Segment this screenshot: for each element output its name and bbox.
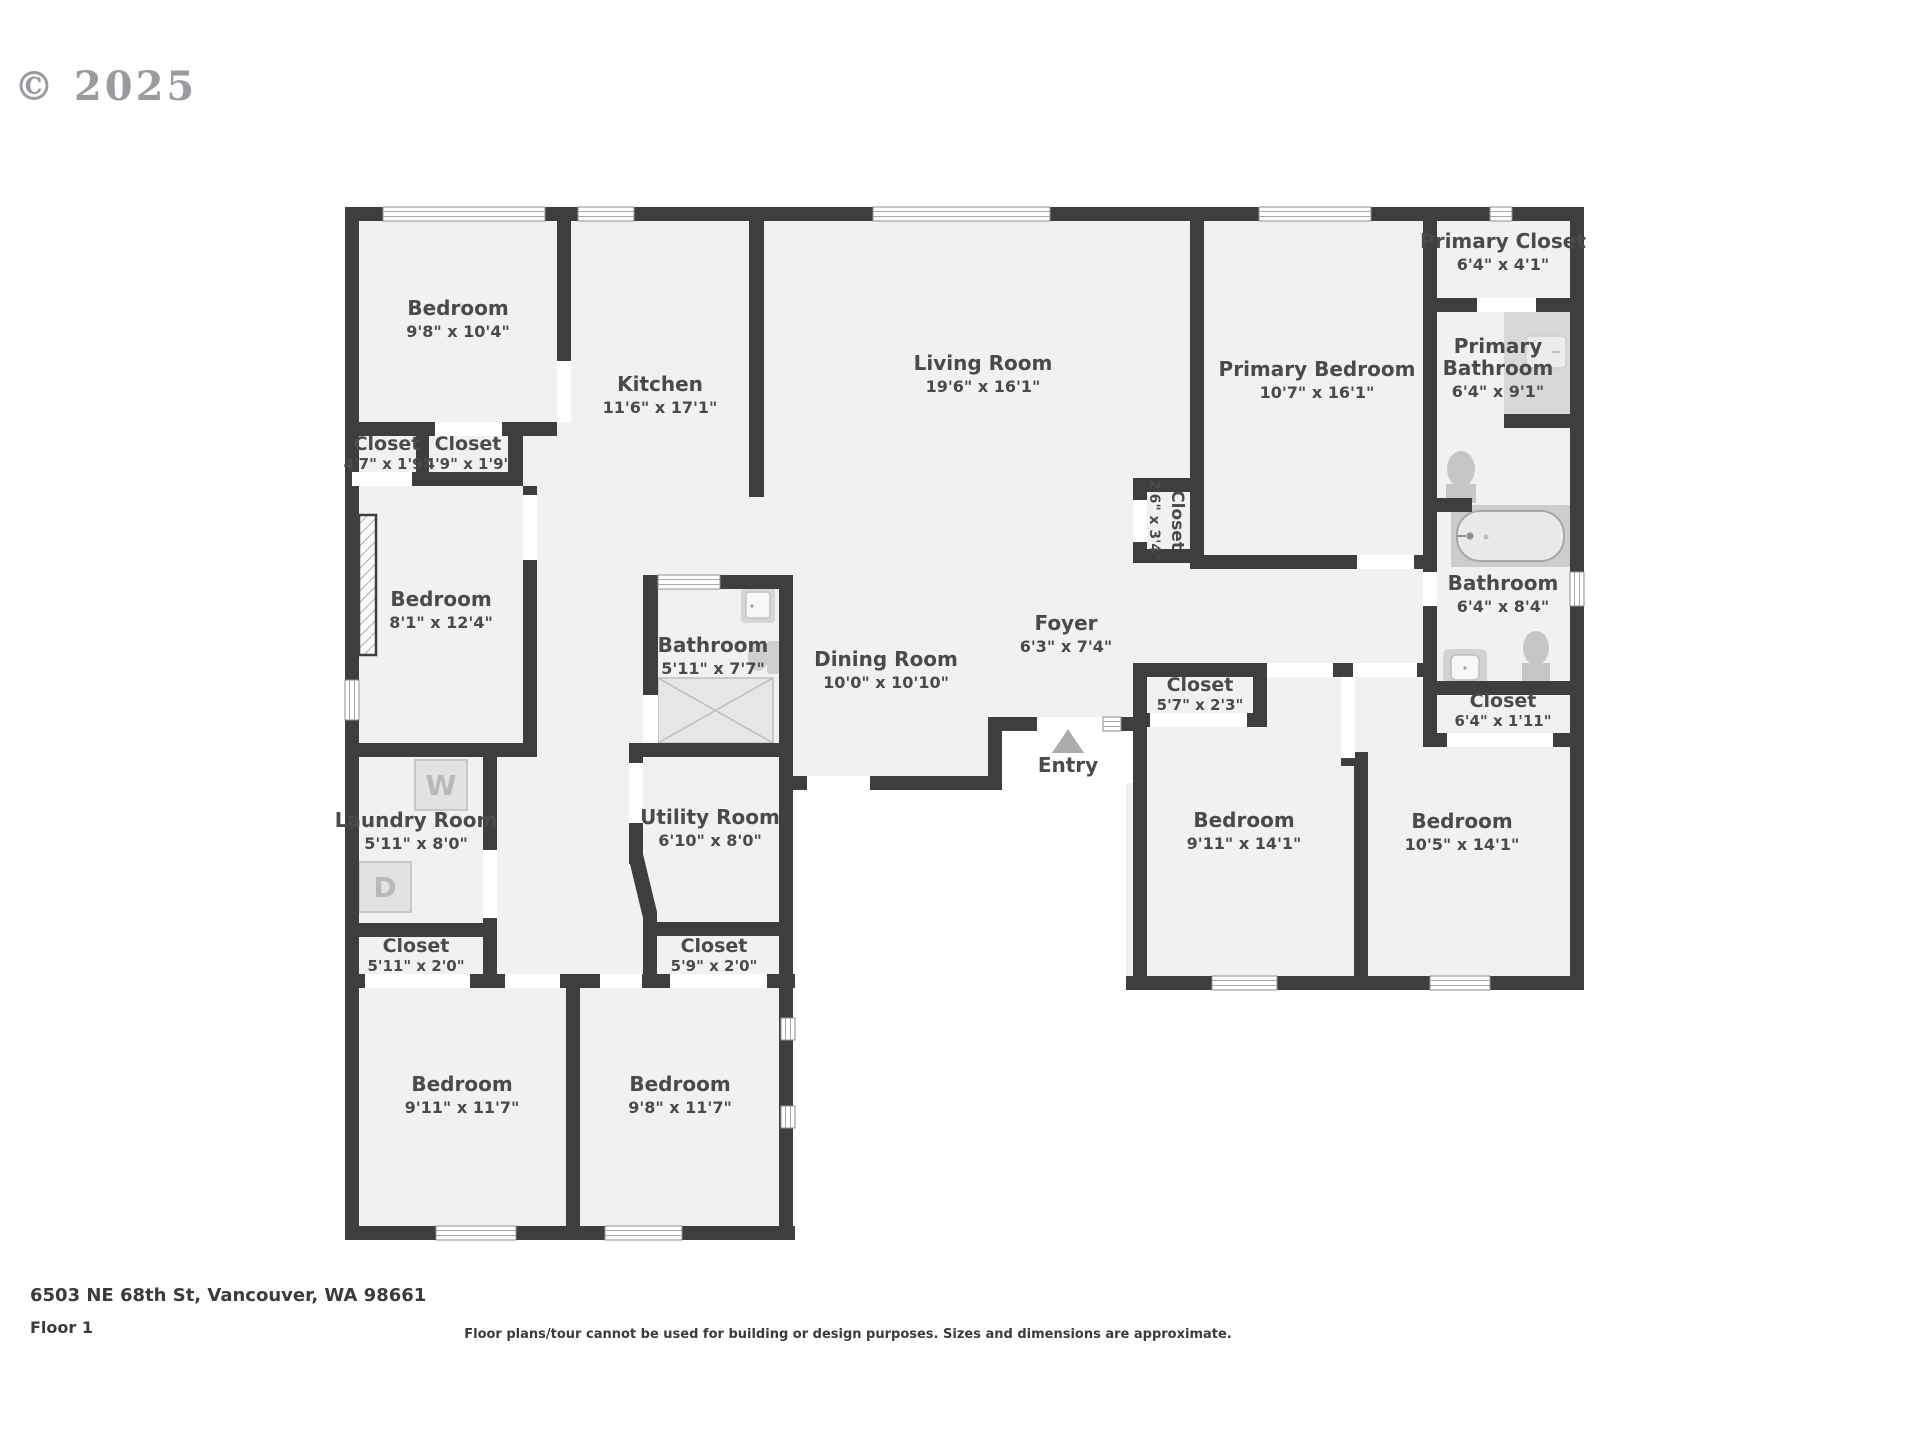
window-icon <box>436 1226 516 1240</box>
wall <box>566 988 580 1240</box>
window-icon <box>658 575 720 589</box>
wall <box>1437 498 1472 512</box>
window-icon <box>383 207 545 221</box>
room-dims: 10'5" x 14'1" <box>1405 835 1520 854</box>
room-dims: 19'6" x 16'1" <box>926 377 1041 396</box>
room-label: Utility Room <box>640 805 780 829</box>
room-label: Closet <box>354 433 421 455</box>
copyright-watermark: © 2025 <box>14 63 197 110</box>
room-dims: 10'7" x 16'1" <box>1260 383 1375 402</box>
wall <box>749 221 764 497</box>
wall <box>1423 606 1437 747</box>
room-dims: 4'9" x 1'9" <box>425 455 512 473</box>
window-icon <box>345 680 359 720</box>
room-label: Bedroom <box>407 296 508 320</box>
room-label-primary-bathroom-2: Bathroom <box>1443 356 1554 380</box>
room-dims: 9'11" x 11'7" <box>405 1098 520 1117</box>
pedestal-sink-icon <box>1446 451 1476 503</box>
room-label: Primary Closet <box>1420 229 1586 253</box>
room-dims: 6'4" x 4'1" <box>1457 255 1549 274</box>
room-dims: 5'11" x 7'7" <box>661 659 765 678</box>
door-opening <box>1133 500 1147 542</box>
room-dims: 8'1" x 12'4" <box>389 613 493 632</box>
wall <box>779 575 793 1240</box>
door-opening <box>1150 713 1247 727</box>
door-opening <box>352 472 412 486</box>
window-icon <box>1259 207 1371 221</box>
chimney-hatch <box>359 515 376 655</box>
room-dims: 6'4" x 1'11" <box>1454 712 1551 730</box>
disclaimer-text: Floor plans/tour cannot be used for buil… <box>464 1327 1232 1342</box>
room-label: Kitchen <box>617 372 703 396</box>
window-icon <box>578 207 634 221</box>
washer-label: W <box>426 769 457 802</box>
door-opening <box>483 850 497 918</box>
door-opening <box>1423 572 1437 606</box>
door-opening <box>1267 663 1333 677</box>
floorplan-svg: © 2025 <box>0 0 1920 1440</box>
room-dims: 9'8" x 10'4" <box>406 322 510 341</box>
window-icon <box>1103 717 1121 731</box>
dryer-label: D <box>373 871 396 904</box>
dryer-icon: D <box>359 862 411 912</box>
room-label: Closet <box>681 935 748 957</box>
wall <box>1190 221 1204 569</box>
room-label: Closet <box>1470 690 1537 712</box>
wall <box>1504 414 1584 428</box>
bathtub-icon <box>1451 505 1570 567</box>
door-opening <box>1037 717 1103 731</box>
wall <box>988 717 1002 790</box>
wall <box>629 743 791 757</box>
room-dims-hall-closet: 2'6" x 3'4" <box>1146 480 1162 561</box>
floorplan-page: © 2025 <box>0 0 1920 1440</box>
room-dims: 9'11" x 14'1" <box>1187 834 1302 853</box>
door-opening <box>643 695 658 743</box>
room-label-hall-closet: Closet <box>1167 490 1187 550</box>
room-label: Closet <box>435 433 502 455</box>
door-opening <box>807 776 870 790</box>
door-opening <box>670 974 767 988</box>
room-label: Primary Bedroom <box>1219 357 1416 381</box>
door-opening <box>365 974 470 988</box>
room-dims: 11'6" x 17'1" <box>603 398 718 417</box>
wall <box>1133 663 1147 990</box>
shower-stall-icon <box>658 678 773 743</box>
wall <box>345 207 359 1240</box>
room-dims: 5'11" x 8'0" <box>364 834 468 853</box>
room-label: Dining Room <box>814 647 958 671</box>
window-icon <box>781 1018 795 1040</box>
pedestal-sink-icon <box>1522 631 1550 682</box>
window-icon <box>1430 976 1490 990</box>
door-opening <box>1447 733 1553 747</box>
room-label: Closet <box>383 935 450 957</box>
wall <box>1423 221 1437 572</box>
window-icon <box>1490 207 1512 221</box>
room-label: Bedroom <box>1193 808 1294 832</box>
washer-icon: W <box>415 760 467 810</box>
door-opening <box>600 974 642 988</box>
window-icon <box>873 207 1050 221</box>
door-opening <box>523 495 537 560</box>
room-label: Bedroom <box>411 1072 512 1096</box>
door-opening <box>1477 298 1536 312</box>
room-dims-primary-bathroom: 6'4" x 9'1" <box>1452 382 1544 401</box>
window-icon <box>1570 572 1584 606</box>
room-dims: 6'10" x 8'0" <box>658 831 762 850</box>
window-icon <box>605 1226 682 1240</box>
room-label: Foyer <box>1034 611 1097 635</box>
room-dims: 10'0" x 10'10" <box>823 673 949 692</box>
door-opening <box>1341 677 1355 758</box>
wall <box>345 743 537 757</box>
room-label: Bedroom <box>1411 809 1512 833</box>
address-text: 6503 NE 68th St, Vancouver, WA 98661 <box>30 1285 426 1306</box>
room-dims: 5'9" x 2'0" <box>671 957 758 975</box>
toilet-icon <box>1443 649 1487 686</box>
room-dims: 6'4" x 8'4" <box>1457 597 1549 616</box>
room-label: Living Room <box>914 351 1053 375</box>
floor-label: Floor 1 <box>30 1318 93 1337</box>
room-label: Bathroom <box>658 633 769 657</box>
room-label: Bathroom <box>1448 571 1559 595</box>
room-dims: 9'8" x 11'7" <box>628 1098 732 1117</box>
room-dims: 5'11" x 2'0" <box>367 957 464 975</box>
room-label: Bedroom <box>629 1072 730 1096</box>
room-label-primary-bathroom: Primary <box>1454 334 1543 358</box>
window-icon <box>781 1106 795 1128</box>
entry-label: Entry <box>1038 753 1098 777</box>
door-opening <box>557 361 571 422</box>
door-opening <box>1353 663 1417 677</box>
room-label: Laundry Room <box>335 808 498 832</box>
wall <box>1354 766 1368 990</box>
wall <box>643 922 791 936</box>
room-label: Bedroom <box>390 587 491 611</box>
door-opening <box>1357 555 1414 569</box>
window-icon <box>1212 976 1277 990</box>
sink-icon <box>741 587 775 623</box>
door-opening <box>505 974 560 988</box>
room-dims: 4'7" x 1'9" <box>344 455 431 473</box>
room-dims: 6'3" x 7'4" <box>1020 637 1112 656</box>
room-dims: 5'7" x 2'3" <box>1157 696 1244 714</box>
room-label: Closet <box>1167 674 1234 696</box>
